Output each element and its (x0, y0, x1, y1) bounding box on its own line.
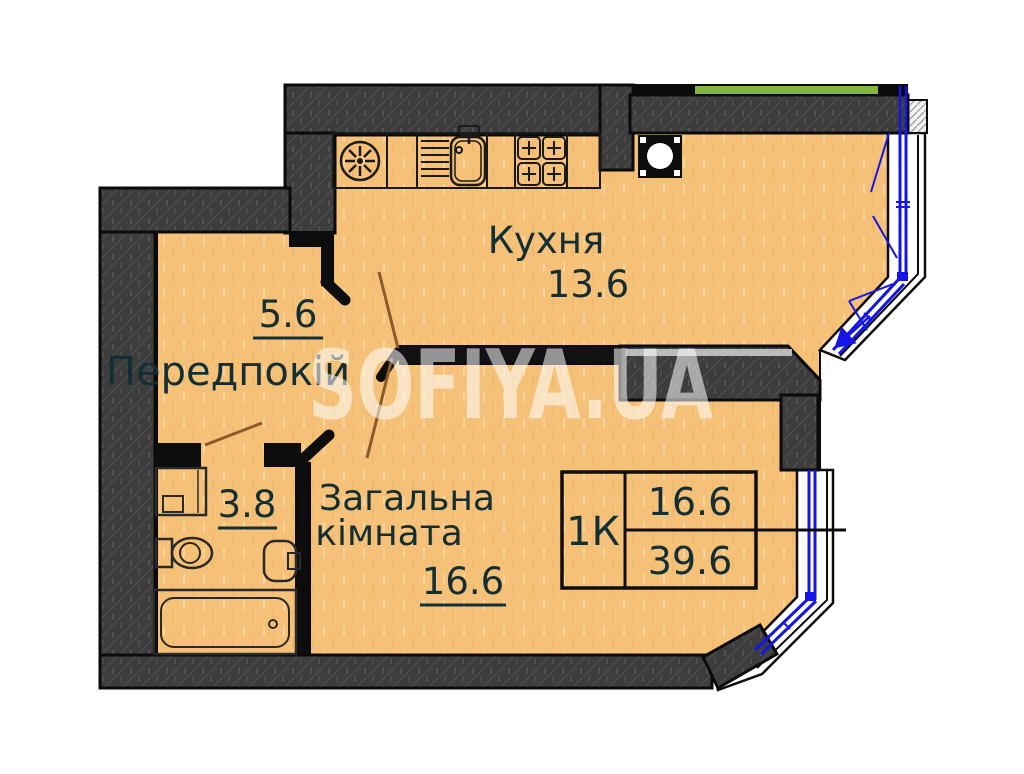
facade-green-strip-color (695, 86, 878, 94)
hallway-area-label: 5.6 (259, 293, 318, 336)
wall-bathroom-living (296, 463, 310, 655)
floor-plan-canvas: 1К 16.6 39.6 Кухня 13.6 5.6 Передпокій 3… (0, 0, 1024, 770)
total-area-value: 39.6 (648, 539, 733, 583)
wall-bottom-outer (100, 655, 712, 688)
wall-bathroom-top-right (265, 444, 300, 466)
apartment-type-label: 1К (566, 509, 620, 555)
vent-shaft-icon (638, 135, 682, 178)
watermark: SOFIYA.UA (308, 331, 713, 441)
living-name-line2: кімната (315, 513, 463, 554)
wall-living-bay-pier (781, 395, 818, 470)
room-area-value: 16.6 (648, 480, 733, 524)
kitchen-name-label: Кухня (488, 219, 605, 262)
wall-bathroom-top-left (155, 444, 200, 466)
wall-hallway-top (100, 188, 290, 232)
floor-plan-page: 1К 16.6 39.6 Кухня 13.6 5.6 Передпокій 3… (0, 0, 1024, 770)
fan-icon (341, 142, 379, 180)
kitchen-area-label: 13.6 (547, 263, 629, 306)
wall-kitchen-top (630, 95, 908, 133)
wall-top-left (285, 85, 630, 135)
wall-hallway-kitchen (285, 133, 335, 233)
living-area-label: 16.6 (422, 560, 504, 603)
wall-left-outer (100, 232, 155, 677)
wall-top-stub (600, 85, 633, 170)
bathroom-area-label: 3.8 (218, 483, 277, 526)
